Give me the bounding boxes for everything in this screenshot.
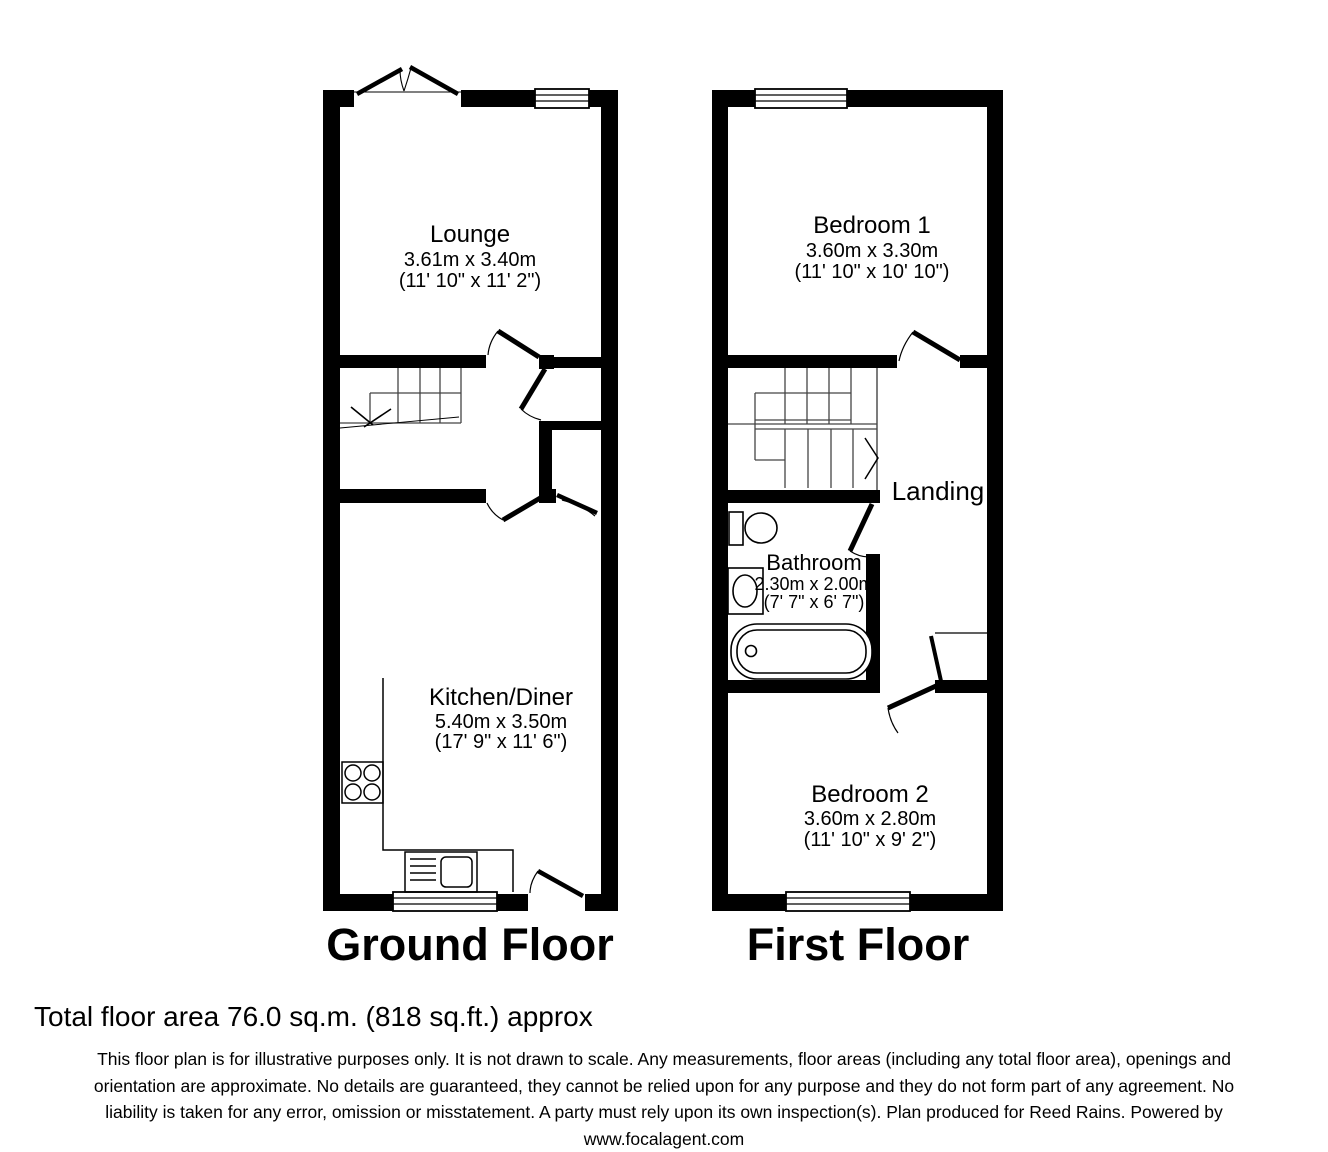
lounge-label: Lounge [430, 221, 510, 248]
entrance-double-door-icon [354, 67, 461, 94]
bedroom2-label: Bedroom 2 [811, 781, 928, 808]
landing-label: Landing [892, 476, 985, 506]
bedroom1-label: Bedroom 1 [813, 212, 930, 239]
lounge-door-icon [488, 331, 539, 357]
kitchen-metric: 5.40m x 3.50m [435, 711, 567, 733]
bathtub-icon [731, 624, 872, 679]
disclaimer-line: www.focalagent.com [0, 1126, 1328, 1152]
bedroom2-door-icon [888, 686, 936, 733]
bathroom-label: Bathroom [766, 550, 861, 575]
stairs-direction-arrow-icon [865, 438, 878, 479]
bathroom-metric: 2.30m x 2.00m [754, 574, 873, 594]
bedroom2-imperial: (11' 10" x 9' 2") [804, 829, 937, 851]
total-floor-area: Total floor area 76.0 sq.m. (818 sq.ft.)… [34, 1001, 593, 1033]
kitchen-window-icon [393, 892, 497, 911]
landing-cupboard-icon [931, 633, 987, 681]
floorplan-drawing: Lounge 3.61m x 3.40m (11' 10" x 11' 2") … [0, 0, 1328, 985]
stairs-up-marker-icon [340, 407, 459, 428]
first-floor-plan: Bedroom 1 3.60m x 3.30m (11' 10" x 10' 1… [712, 89, 1003, 970]
bedroom1-imperial: (11' 10" x 10' 10") [795, 261, 950, 283]
hob-icon [342, 762, 383, 803]
bedroom2-window-icon [786, 892, 910, 911]
ground-floor-title: Ground Floor [326, 919, 613, 970]
kitchen-door-icon [487, 497, 542, 520]
lounge-window-icon [535, 89, 589, 108]
disclaimer: This floor plan is for illustrative purp… [0, 1046, 1328, 1152]
bedroom1-metric: 3.60m x 3.30m [806, 240, 938, 262]
hall-door-icon [521, 369, 545, 420]
cupboard-door-icon [557, 495, 597, 516]
disclaimer-line: This floor plan is for illustrative purp… [0, 1046, 1328, 1073]
kitchen-label: Kitchen/Diner [429, 684, 573, 711]
bedroom2-metric: 3.60m x 2.80m [804, 808, 936, 830]
ground-floor-stairs [340, 368, 461, 428]
ground-floor-doors [354, 67, 597, 896]
first-floor-title: First Floor [747, 919, 970, 970]
sink-icon [405, 852, 477, 892]
disclaimer-line: liability is taken for any error, omissi… [0, 1099, 1328, 1126]
lounge-metric: 3.61m x 3.40m [404, 249, 536, 271]
floorplan-page: { "colors": { "wall": "#000000", "backgr… [0, 0, 1328, 1151]
bedroom1-window-icon [755, 89, 847, 108]
first-floor-stairs [728, 368, 878, 490]
back-door-icon [530, 871, 583, 896]
bedroom1-door-icon [899, 332, 960, 361]
toilet-icon [729, 512, 777, 545]
ground-floor-plan: Lounge 3.61m x 3.40m (11' 10" x 11' 2") … [323, 67, 618, 970]
lounge-imperial: (11' 10" x 11' 2") [399, 270, 541, 292]
kitchen-imperial: (17' 9" x 11' 6") [435, 731, 568, 753]
bathroom-imperial: (7' 7" x 6' 7") [764, 592, 865, 612]
disclaimer-line: orientation are approximate. No details … [0, 1073, 1328, 1100]
first-floor-labels: Bedroom 1 3.60m x 3.30m (11' 10" x 10' 1… [754, 212, 984, 851]
